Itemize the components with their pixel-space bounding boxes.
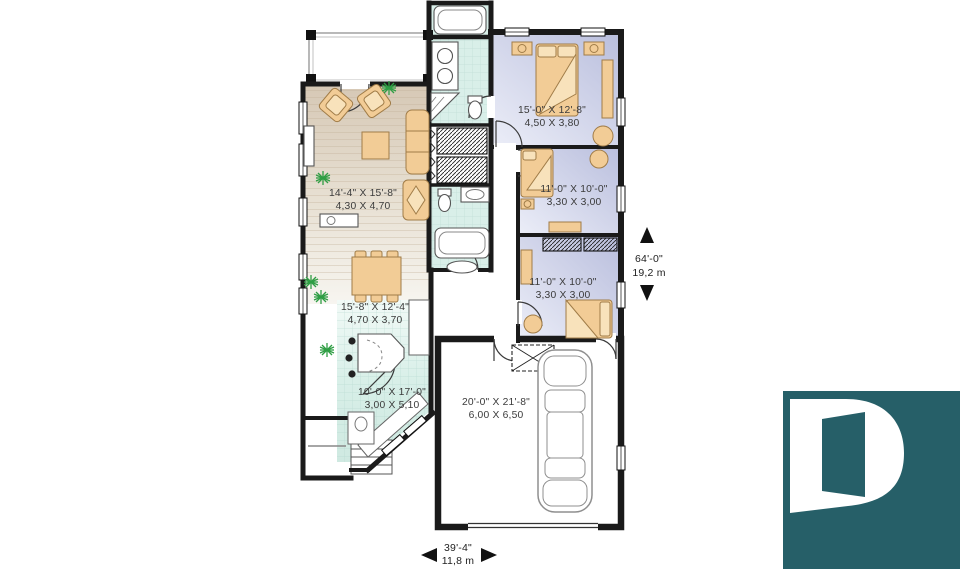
living-label-metric: 4,30 X 4,70 xyxy=(336,201,391,212)
arrow-right-icon xyxy=(481,548,497,562)
logo-door-cutout xyxy=(822,412,865,497)
plant-icon xyxy=(314,290,328,304)
window xyxy=(581,28,605,36)
window xyxy=(299,288,307,314)
bedroom3-label-metric: 3,30 X 3,00 xyxy=(536,290,591,301)
floor-plan-page: 14'-4" X 15'-8" 4,30 X 4,70 15'-0" X 12'… xyxy=(0,0,960,569)
bedroom2-label-imperial: 11'-0" X 10'-0" xyxy=(540,184,607,195)
nightstand xyxy=(584,42,604,55)
kitchen-counter xyxy=(409,300,429,355)
dining-set xyxy=(352,251,401,302)
front-porch xyxy=(306,30,433,84)
sink xyxy=(438,69,453,84)
plant-icon xyxy=(304,275,318,289)
window xyxy=(617,186,625,212)
overall-width-dimension: 39'-4" 11,8 m xyxy=(421,542,497,567)
window xyxy=(617,446,625,470)
master-label-metric: 4,50 X 3,80 xyxy=(525,118,580,129)
fireplace xyxy=(304,126,314,166)
dining-label-imperial: 15'-8" X 12'-4" xyxy=(341,302,409,313)
coffee-table xyxy=(362,132,389,159)
window xyxy=(617,98,625,126)
pillow xyxy=(523,151,536,160)
window xyxy=(299,254,307,280)
kitchen-label-imperial: 10'-0" X 17'-0" xyxy=(358,387,426,398)
kitchen-label-metric: 3,00 X 5,10 xyxy=(365,400,420,411)
garage-label-metric: 6,00 X 6,50 xyxy=(469,410,524,421)
dining-table xyxy=(352,257,401,295)
drummond-logo xyxy=(783,391,960,569)
overall-depth-dimension: 64'-0" 19,2 m xyxy=(632,227,665,301)
sink xyxy=(438,49,453,64)
toilet xyxy=(438,189,451,212)
garage-door-opening xyxy=(468,520,598,534)
window xyxy=(505,28,529,36)
closet xyxy=(584,238,617,251)
arrow-left-icon xyxy=(421,548,437,562)
width-metric: 11,8 m xyxy=(442,555,475,567)
console-table xyxy=(320,214,358,227)
chaise xyxy=(403,180,429,220)
washer xyxy=(437,128,487,154)
width-imperial: 39'-4" xyxy=(444,542,472,554)
chair-round xyxy=(593,126,613,146)
bedroom3-label-imperial: 11'-0" X 10'-0" xyxy=(529,277,596,288)
arrow-down-icon xyxy=(640,285,654,301)
pillow xyxy=(538,46,556,57)
window xyxy=(617,282,625,308)
porch-post xyxy=(306,30,316,40)
bed3 xyxy=(566,300,612,338)
bath-rug xyxy=(447,261,477,273)
bedroom2-label-metric: 3,30 X 3,00 xyxy=(547,197,602,208)
plant-icon xyxy=(382,81,396,95)
nightstand xyxy=(521,199,534,209)
window xyxy=(299,198,307,226)
pillow xyxy=(600,302,610,336)
toilet xyxy=(468,96,482,119)
garage-content xyxy=(512,345,592,512)
floor-plan-svg: 14'-4" X 15'-8" 4,30 X 4,70 15'-0" X 12'… xyxy=(0,0,960,569)
chair-round xyxy=(590,150,608,168)
pillow xyxy=(558,46,576,57)
depth-metric: 19,2 m xyxy=(632,267,665,279)
master-label-imperial: 15'-0" X 12'-8" xyxy=(518,105,586,116)
living-label-imperial: 14'-4" X 15'-8" xyxy=(329,188,397,199)
closet xyxy=(543,238,581,251)
chair-round xyxy=(524,315,542,333)
nightstand xyxy=(512,42,532,55)
plant-icon xyxy=(316,171,330,185)
sofa xyxy=(406,110,429,174)
dresser xyxy=(549,222,581,232)
dining-label-metric: 4,70 X 3,70 xyxy=(348,315,403,326)
depth-imperial: 64'-0" xyxy=(635,253,663,265)
dryer xyxy=(437,157,487,183)
arrow-up-icon xyxy=(640,227,654,243)
dresser xyxy=(602,60,613,118)
plant-icon xyxy=(320,343,334,357)
garage-label-imperial: 20'-0" X 21'-8" xyxy=(462,397,530,408)
car xyxy=(538,350,592,512)
